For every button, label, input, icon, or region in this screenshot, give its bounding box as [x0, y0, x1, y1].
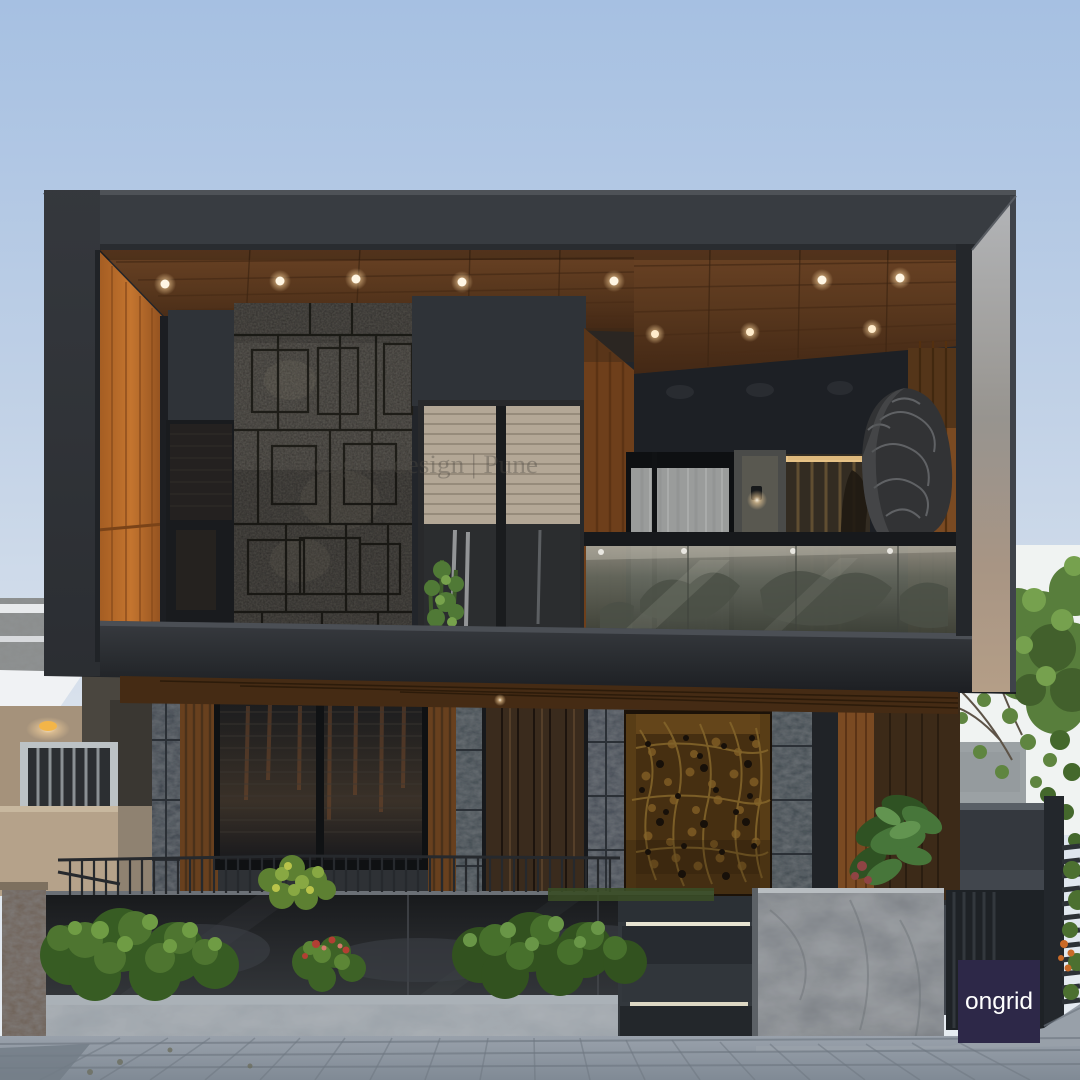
svg-text:ongrid: ongrid — [965, 988, 1033, 1015]
svg-text:©ongrid design | Pune: ©ongrid design | Pune — [294, 450, 538, 479]
